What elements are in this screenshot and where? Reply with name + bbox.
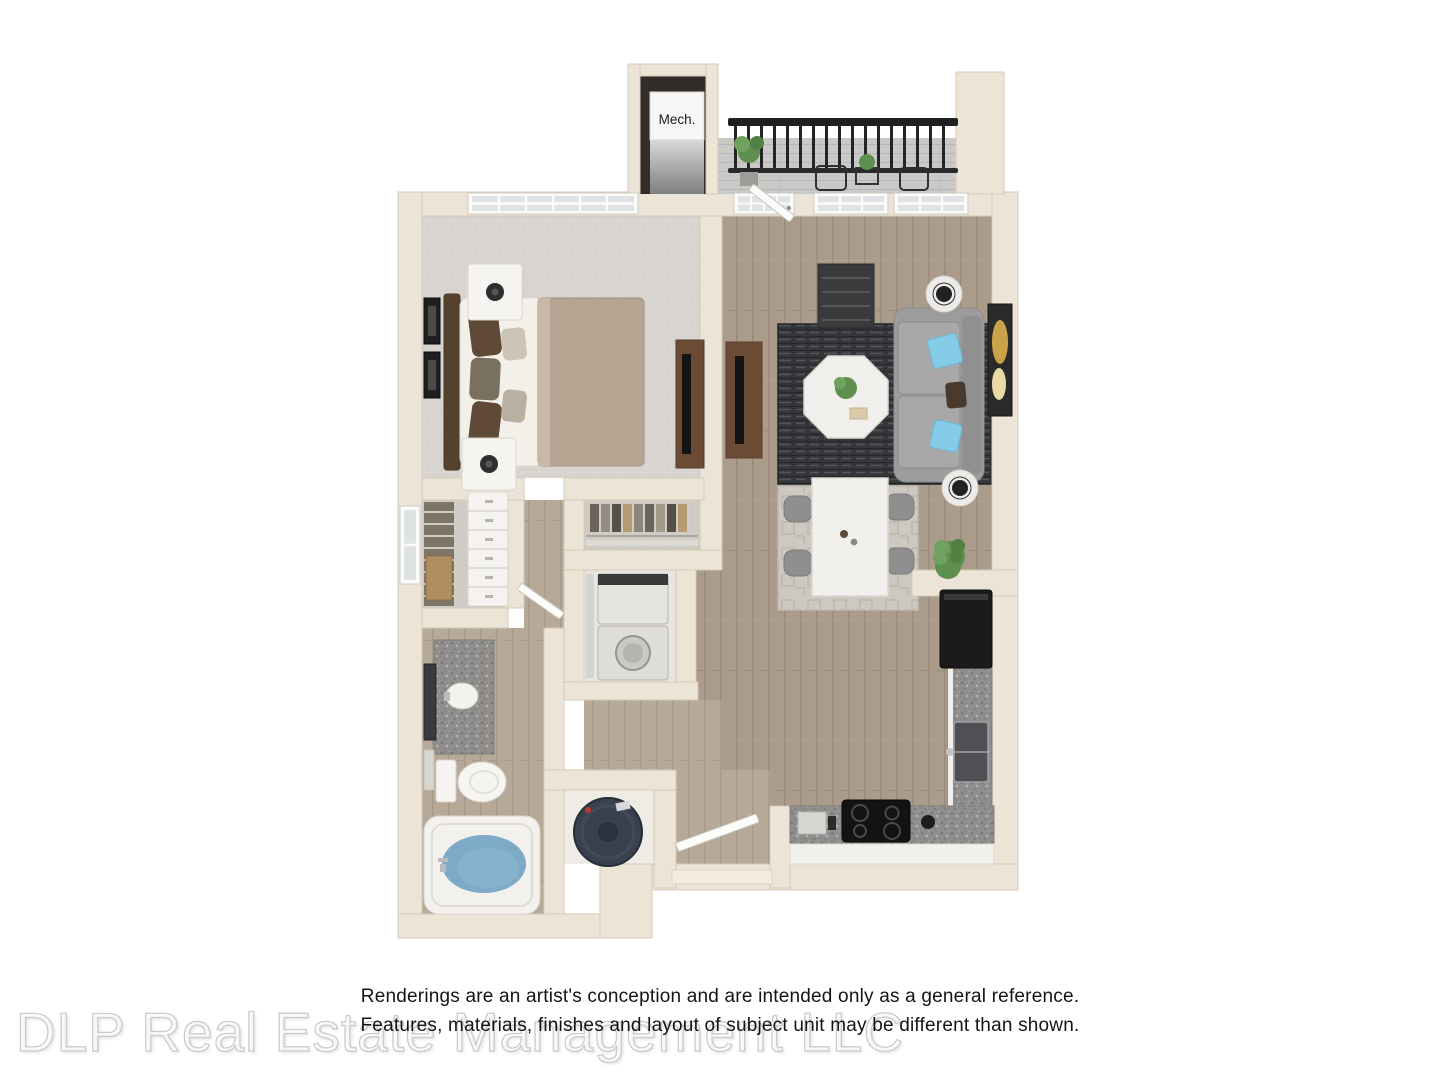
nightstand-bottom <box>462 438 516 490</box>
duvet <box>538 298 644 466</box>
mech-right-wall <box>706 64 718 194</box>
lamp <box>936 286 952 302</box>
door-handle <box>787 206 791 210</box>
dryer <box>598 626 668 680</box>
side-table-bottom <box>942 470 978 506</box>
towel-rack <box>424 750 434 790</box>
laundry-right-wall <box>676 570 696 700</box>
duvet-fold <box>538 298 550 466</box>
reachin-closet-bottom-wall <box>564 550 722 570</box>
entry-threshold <box>672 870 772 884</box>
accent-pillow <box>929 419 962 452</box>
bedroom-tv <box>682 354 691 454</box>
coffee-table <box>804 356 888 438</box>
vanity-sink <box>446 683 478 709</box>
heater-valve <box>585 807 591 813</box>
hall-floor-lower <box>584 700 722 770</box>
side-table-top <box>926 276 962 312</box>
living-wall-art <box>988 304 1012 416</box>
living-room-window-right <box>894 193 968 214</box>
nightstand-top <box>468 264 522 320</box>
living-tv <box>735 356 744 444</box>
kettle <box>921 815 935 829</box>
railing-top-rail <box>728 118 958 126</box>
laundry-closet <box>586 574 668 680</box>
balcony-plant-small <box>859 154 875 170</box>
table-tray <box>850 408 867 419</box>
dresser <box>468 492 508 606</box>
living-media-console <box>726 342 762 458</box>
walkin-closet-window <box>400 506 420 584</box>
washer-controls <box>598 574 668 585</box>
bedroom-bottom-wall-right <box>564 478 704 500</box>
water-heater-closet <box>574 798 642 866</box>
dining-table <box>812 478 888 596</box>
laundry-bottom-wall <box>564 682 698 700</box>
refrigerator <box>940 590 992 668</box>
floorplan-page: Mech. <box>0 0 1440 1080</box>
bottom-connector-wall <box>600 864 652 938</box>
bathtub <box>424 816 540 914</box>
bedroom-media-console <box>676 340 704 468</box>
mech-left-wall <box>628 64 640 194</box>
floor-plan-rendering: Mech. <box>0 0 1440 1080</box>
mech-label: Mech. <box>659 112 696 127</box>
laundry-wire-shelf <box>586 574 594 678</box>
cabinet-faces-bottom <box>790 844 994 864</box>
dark-pillow <box>945 381 967 409</box>
luggage <box>426 556 452 600</box>
laundry-left-wall <box>564 570 584 700</box>
toilet-tank <box>436 760 456 802</box>
dining-chair <box>886 548 914 574</box>
disclaimer-line-1: Renderings are an artist's conception an… <box>0 986 1440 1008</box>
vanity <box>434 640 494 754</box>
sofa <box>894 308 984 482</box>
dining-chair <box>784 496 812 522</box>
accent-pillow <box>927 333 963 369</box>
balcony <box>718 72 1004 194</box>
closet-shelf <box>586 540 698 546</box>
sink-faucet <box>946 748 954 756</box>
balcony-right-wall <box>956 72 1004 194</box>
toilet <box>436 760 506 802</box>
kitchen-return-wall <box>770 806 790 888</box>
bathroom-mirror <box>424 664 436 740</box>
cooktop <box>842 800 910 842</box>
lounge-bench <box>818 264 874 328</box>
bedroom-window <box>468 193 638 214</box>
dining-chair <box>784 550 812 576</box>
right-wall <box>992 192 1018 890</box>
mech-unit-body <box>650 140 704 194</box>
mech-top-wall <box>628 64 718 76</box>
water-heater-closet-top-wall <box>544 770 676 790</box>
bath-bottom-wall <box>398 914 624 938</box>
headboard <box>444 294 460 470</box>
bathroom-top-wall <box>422 608 508 628</box>
vanity-faucet <box>444 692 450 701</box>
disclaimer-line-2: Features, materials, finishes and layout… <box>0 1015 1440 1037</box>
dining-chair <box>886 494 914 520</box>
lamp <box>952 480 968 496</box>
living-room-window-left <box>814 193 888 214</box>
washer <box>598 574 668 624</box>
mech-closet: Mech. <box>628 64 718 194</box>
